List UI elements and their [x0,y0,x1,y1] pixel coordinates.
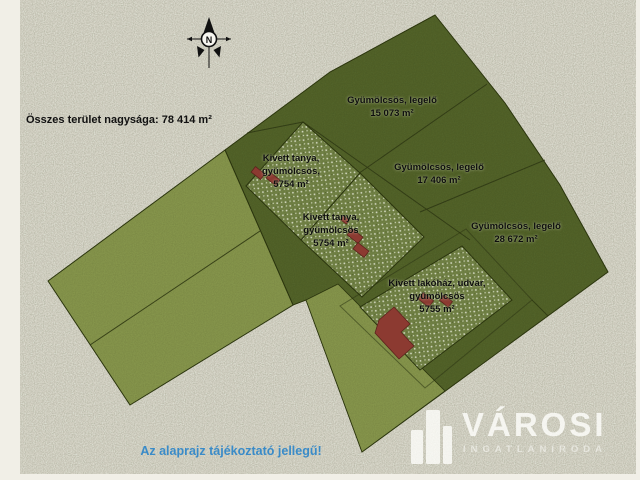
logo-subtitle: INGATLANIRODA [463,444,607,455]
parcel-label-tanya-1: Kivett tanya, gyümölcsös, 5754 m² [262,152,320,191]
parcel-use: Kivett lakóház, udvar, [388,277,485,290]
compass-north-icon: N [187,17,231,68]
compass-n-label: N [206,35,213,45]
parcel-use2: gyümölcsös [303,224,360,237]
parcel-use: Gyümölcsös, legelő [347,94,437,107]
agency-logo: VÁROSI INGATLANIRODA [406,404,626,468]
parcel-label-28672: Gyümölcsös, legelő 28 672 m² [471,220,561,246]
total-area-title: Összes terület nagysága: 78 414 m² [26,114,212,126]
parcel-use: Kivett tanya, [262,152,320,165]
parcel-area: 28 672 m² [471,233,561,246]
parcel-area: 5754 m² [303,237,360,250]
parcel-area: 5755 m² [388,303,485,316]
parcel-label-tanya-2: Kivett tanya, gyümölcsös 5754 m² [303,211,360,250]
parcel-use2: gyümölcsös [388,290,485,303]
parcel-use2: gyümölcsös, [262,165,320,178]
parcel-area: 17 406 m² [394,174,484,187]
parcel-area: 15 073 m² [347,107,437,120]
parcel-label-15073: Gyümölcsös, legelő 15 073 m² [347,94,437,120]
buildings-icon [406,404,462,468]
parcel-area: 5754 m² [262,178,320,191]
parcel-label-lakohaz: Kivett lakóház, udvar, gyümölcsös 5755 m… [388,277,485,316]
logo-name: VÁROSI [462,406,607,444]
parcel-use: Gyümölcsös, legelő [471,220,561,233]
parcel-use: Gyümölcsös, legelő [394,161,484,174]
disclaimer-note: Az alaprajz tájékoztató jellegű! [140,444,321,458]
site-plan-page: N Összes terület nagysága: 78 414 m² Gyü… [0,0,640,480]
parcel-use: Kivett tanya, [303,211,360,224]
parcel-label-17406: Gyümölcsös, legelő 17 406 m² [394,161,484,187]
